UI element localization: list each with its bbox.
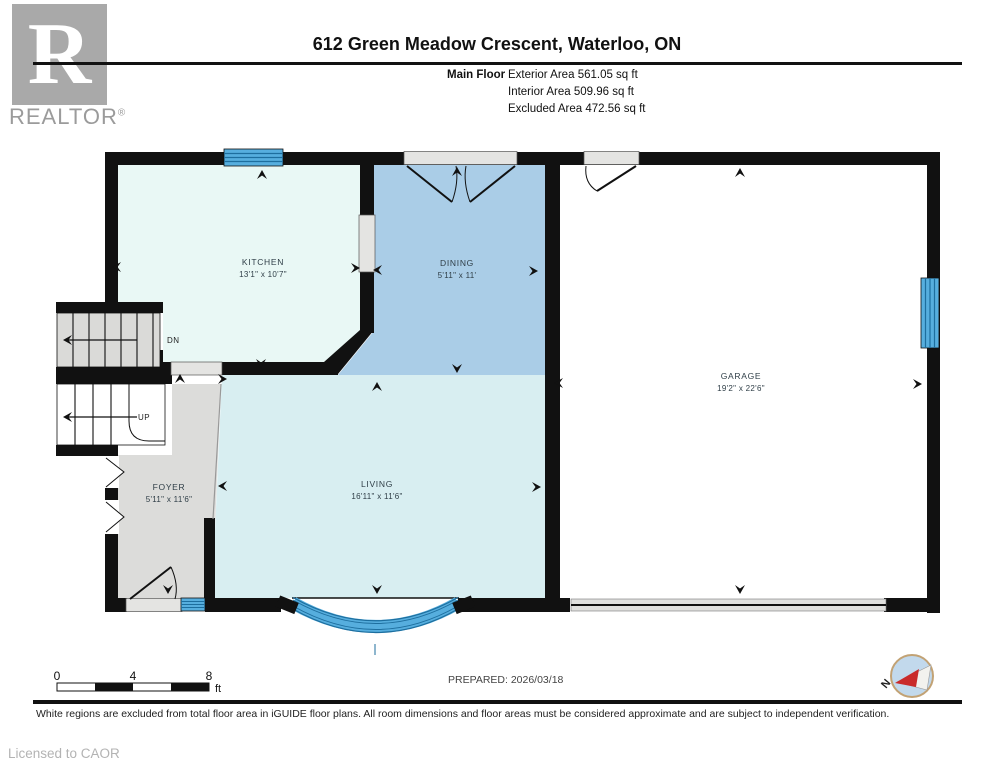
scale-tick-4: 4 [130,669,137,683]
floor-plan-page: R 612 Green Meadow Crescent, Waterloo, O… [0,0,994,768]
prepared-date: PREPARED: 2026/03/18 [448,674,563,686]
scale-tick-8: 8 [206,669,213,683]
stairs-down-label: DN [167,336,180,345]
room-fills [118,165,927,599]
scale-tick-0: 0 [54,669,61,683]
living-dims: 16'11" x 11'6" [351,492,402,501]
kitchen-dims: 13'1" x 10'7" [239,270,287,279]
front-door-sill [126,599,182,612]
kitchen-label: KITCHEN [242,257,284,267]
floor-plan-drawing: DN UP [0,0,994,768]
scale-unit: ft [215,683,221,695]
garage-door [571,599,886,611]
garage-label: GARAGE [721,371,762,381]
stairs-up-label: UP [138,413,150,422]
garage-window [921,278,939,348]
living-label: LIVING [361,479,393,489]
dining-dims: 5'11" x 11' [438,271,477,280]
footer-divider [33,700,962,704]
kitchen-window [224,149,283,166]
foyer-window [181,598,205,611]
garage-dims: 19'2" x 22'6" [717,384,765,393]
scale-bar: 0 4 8 ft [54,669,221,695]
bow-window [276,596,476,655]
stairs-up: UP [57,384,165,445]
french-door-lintel [404,152,517,165]
room-garage-floor [560,165,927,599]
disclaimer-text: White regions are excluded from total fl… [36,708,966,720]
foyer-label: FOYER [153,482,186,492]
dining-label: DINING [440,258,474,268]
garage-entry-lintel [584,152,639,165]
license-text: Licensed to CAOR [8,746,120,761]
kitchen-foyer-doorway [171,362,222,375]
foyer-dims: 5'11" x 11'6" [146,495,193,504]
compass: N [879,655,933,697]
pass-through [359,215,375,272]
